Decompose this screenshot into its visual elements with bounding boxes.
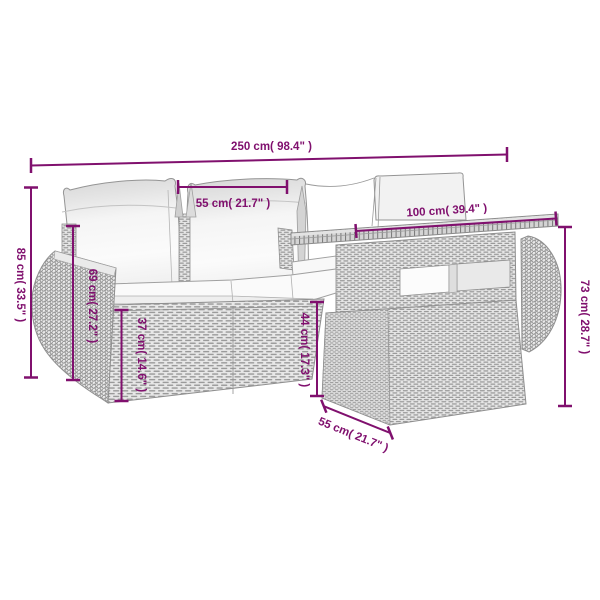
svg-text:44 cm( 17.3" ): 44 cm( 17.3" ): [298, 313, 310, 388]
svg-text:85 cm( 33.5" ): 85 cm( 33.5" ): [14, 248, 26, 323]
svg-text:73 cm( 28.7" ): 73 cm( 28.7" ): [578, 280, 590, 355]
svg-text:69 cm( 27.2" ): 69 cm( 27.2" ): [86, 269, 98, 344]
svg-text:37 cm( 14.6" ): 37 cm( 14.6" ): [135, 318, 147, 393]
svg-text:55 cm( 21.7" ): 55 cm( 21.7" ): [196, 198, 271, 210]
svg-text:250 cm( 98.4" ): 250 cm( 98.4" ): [231, 141, 312, 153]
